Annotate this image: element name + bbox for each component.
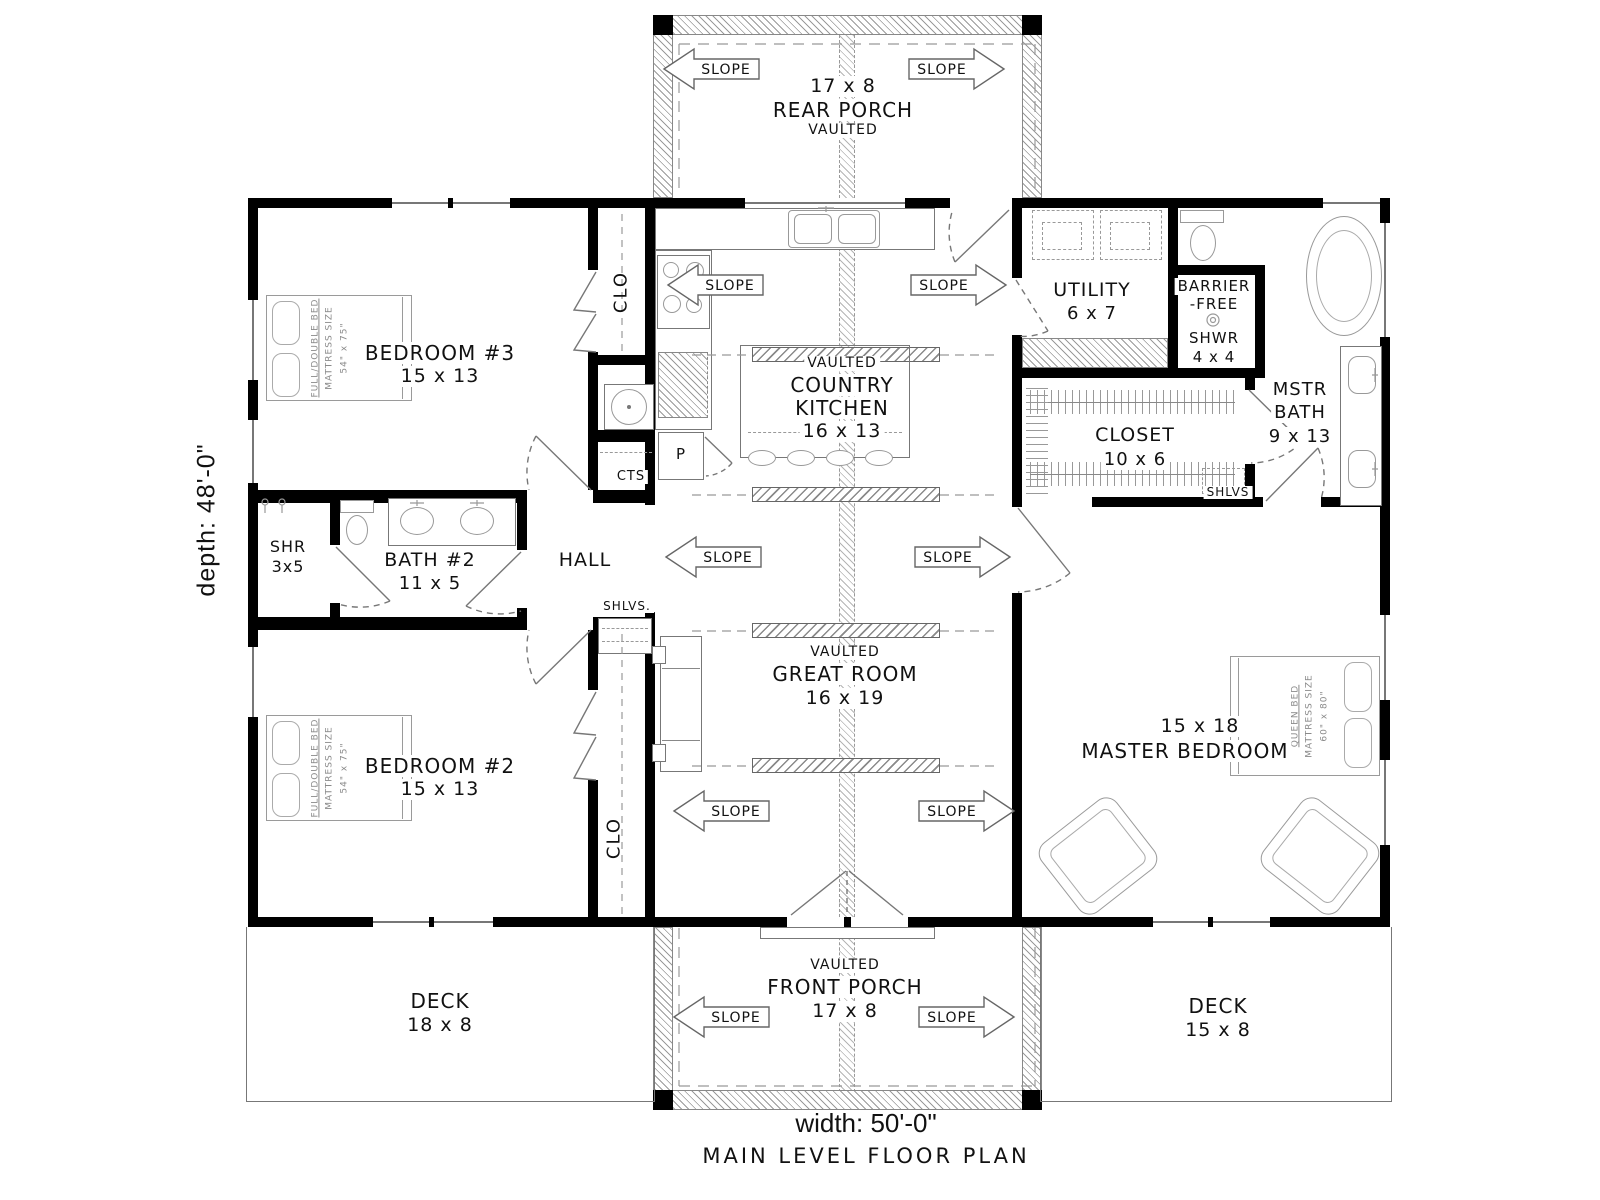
master-closet-dims: 10 x 6 xyxy=(1101,450,1169,470)
front-door-leaf-left xyxy=(791,871,846,915)
svg-text:SLOPE: SLOPE xyxy=(917,62,967,78)
great-room-dims: 16 x 19 xyxy=(803,688,888,709)
width-dimension-label: width: 50'-0" xyxy=(795,1108,936,1139)
pantry-door-leaf xyxy=(705,437,732,463)
deck-left-dims: 18 x 8 xyxy=(404,1015,476,1036)
rear-porch-vaulted: VAULTED xyxy=(805,123,881,138)
pantry-door-arc xyxy=(706,463,732,476)
floor-plan: FULL/DOUBLE BED MATTRESS SIZE 54" x 75" … xyxy=(0,0,1600,1200)
slope-arrow-rear-left: SLOPE xyxy=(662,46,762,92)
bath2-faucet-2 xyxy=(470,500,484,506)
depth-dimension-label: depth: 48'-0" xyxy=(193,443,222,596)
kitchen-vaulted: VAULTED xyxy=(804,356,880,371)
mstr-bath-door-leaf xyxy=(1266,448,1318,501)
barrier-shwr-drain xyxy=(1207,314,1219,326)
slope-arrow-greatroom-lower-right: SLOPE xyxy=(916,788,1016,834)
bedroom2-door-arc xyxy=(527,630,536,684)
bath2-dims: 11 x 5 xyxy=(396,574,464,594)
hall-name: HALL xyxy=(556,550,614,571)
master-closet-shelves-label: SHLVS xyxy=(1204,486,1253,499)
barrier-shwr-line1: BARRIER xyxy=(1175,278,1254,295)
slope-arrow-greatroom-upper-right: SLOPE xyxy=(912,534,1012,580)
slope-arrow-frontporch-left: SLOPE xyxy=(672,994,772,1040)
front-porch-vaulted: VAULTED xyxy=(807,958,883,973)
bedroom3-door-arc xyxy=(527,436,536,490)
shr-head-1 xyxy=(262,499,268,505)
slope-arrow-kitchen-right: SLOPE xyxy=(908,262,1008,308)
rear-porch-name: REAR PORCH xyxy=(770,99,916,121)
doors-and-details-layer xyxy=(0,0,1600,1200)
svg-text:SLOPE: SLOPE xyxy=(919,278,969,294)
slope-arrow-greatroom-upper-left: SLOPE xyxy=(664,534,764,580)
master-door-leaf xyxy=(1018,508,1070,573)
hall-shelves-label: SHLVS. xyxy=(600,600,654,613)
bedroom3-dims: 15 x 13 xyxy=(398,366,483,387)
shr-name: SHR xyxy=(267,538,309,556)
svg-text:SLOPE: SLOPE xyxy=(711,1010,761,1026)
kitchen-name-2: KITCHEN xyxy=(792,397,892,419)
mstr-faucet-1 xyxy=(1372,368,1378,382)
bedroom2-name: BEDROOM #2 xyxy=(362,755,518,777)
shr-dims: 3x5 xyxy=(269,558,308,576)
svg-text:SLOPE: SLOPE xyxy=(923,550,973,566)
mstr-faucet-2 xyxy=(1372,462,1378,476)
bath2-door-arc xyxy=(466,606,521,614)
master-door-arc xyxy=(1018,573,1070,592)
kitchen-dims: 16 x 13 xyxy=(800,421,885,442)
great-room-name: GREAT ROOM xyxy=(769,663,920,685)
mstr-bath-door-arc xyxy=(1318,448,1324,499)
slope-arrow-rear-right: SLOPE xyxy=(906,46,1006,92)
utility-dims: 6 x 7 xyxy=(1064,304,1120,324)
mstr-bath-line2: BATH xyxy=(1271,403,1329,423)
mstr-bath-line1: MSTR xyxy=(1270,380,1330,400)
slope-arrow-greatroom-lower-left: SLOPE xyxy=(672,788,772,834)
deck-right-name: DECK xyxy=(1185,995,1250,1017)
slope-arrow-frontporch-right: SLOPE xyxy=(916,994,1016,1040)
kitchen-sink-faucet xyxy=(818,206,834,212)
rear-door-arc xyxy=(949,212,955,262)
shr-head-2 xyxy=(279,499,285,505)
svg-text:SLOPE: SLOPE xyxy=(927,1010,977,1026)
bedroom3-closet-bifold xyxy=(574,272,596,352)
svg-text:SLOPE: SLOPE xyxy=(703,550,753,566)
slope-arrow-kitchen-left: SLOPE xyxy=(666,262,766,308)
barrier-shwr-line3: SHWR xyxy=(1186,330,1242,347)
rear-door-leaf xyxy=(955,210,1009,262)
bedroom2-dims: 15 x 13 xyxy=(398,779,483,800)
deck-left-name: DECK xyxy=(407,990,472,1012)
svg-text:SLOPE: SLOPE xyxy=(927,804,977,820)
cts-label: CTS xyxy=(614,470,648,484)
bedroom2-door-leaf xyxy=(536,630,591,684)
shr-door-arc xyxy=(338,601,390,607)
bedroom3-door-leaf xyxy=(536,436,591,490)
bedroom3-name: BEDROOM #3 xyxy=(362,342,518,364)
utility-door-leaf xyxy=(1016,280,1048,331)
master-bedroom-dims: 15 x 18 xyxy=(1158,716,1243,737)
pantry-label: P xyxy=(673,446,689,463)
barrier-shwr-line4: 4 x 4 xyxy=(1190,349,1239,366)
barrier-shwr-drain-inner xyxy=(1211,318,1216,323)
utility-name: UTILITY xyxy=(1050,280,1134,301)
bedroom3-closet-label: CLO xyxy=(611,271,632,313)
kitchen-name-1: COUNTRY xyxy=(787,374,896,396)
bath2-faucet-1 xyxy=(410,500,424,506)
master-bedroom-name: MASTER BEDROOM xyxy=(1078,740,1291,762)
bedroom2-closet-bifold xyxy=(574,692,596,780)
deck-right-dims: 15 x 8 xyxy=(1182,1020,1254,1041)
rear-porch-dims: 17 x 8 xyxy=(807,76,879,97)
master-closet-name: CLOSET xyxy=(1092,425,1178,446)
great-room-vaulted: VAULTED xyxy=(807,645,883,660)
front-door-leaf-right xyxy=(849,871,903,915)
plan-title: MAIN LEVEL FLOOR PLAN xyxy=(702,1144,1029,1168)
mstr-bath-dims: 9 x 13 xyxy=(1266,427,1334,447)
svg-text:SLOPE: SLOPE xyxy=(701,62,751,78)
svg-text:SLOPE: SLOPE xyxy=(705,278,755,294)
bath2-name: BATH #2 xyxy=(381,550,479,571)
front-porch-dims: 17 x 8 xyxy=(809,1001,881,1022)
bedroom2-closet-label: CLO xyxy=(604,817,625,859)
svg-text:SLOPE: SLOPE xyxy=(711,804,761,820)
front-porch-name: FRONT PORCH xyxy=(764,976,925,998)
utility-door-arc xyxy=(1016,331,1048,336)
barrier-shwr-line2: -FREE xyxy=(1187,296,1241,313)
